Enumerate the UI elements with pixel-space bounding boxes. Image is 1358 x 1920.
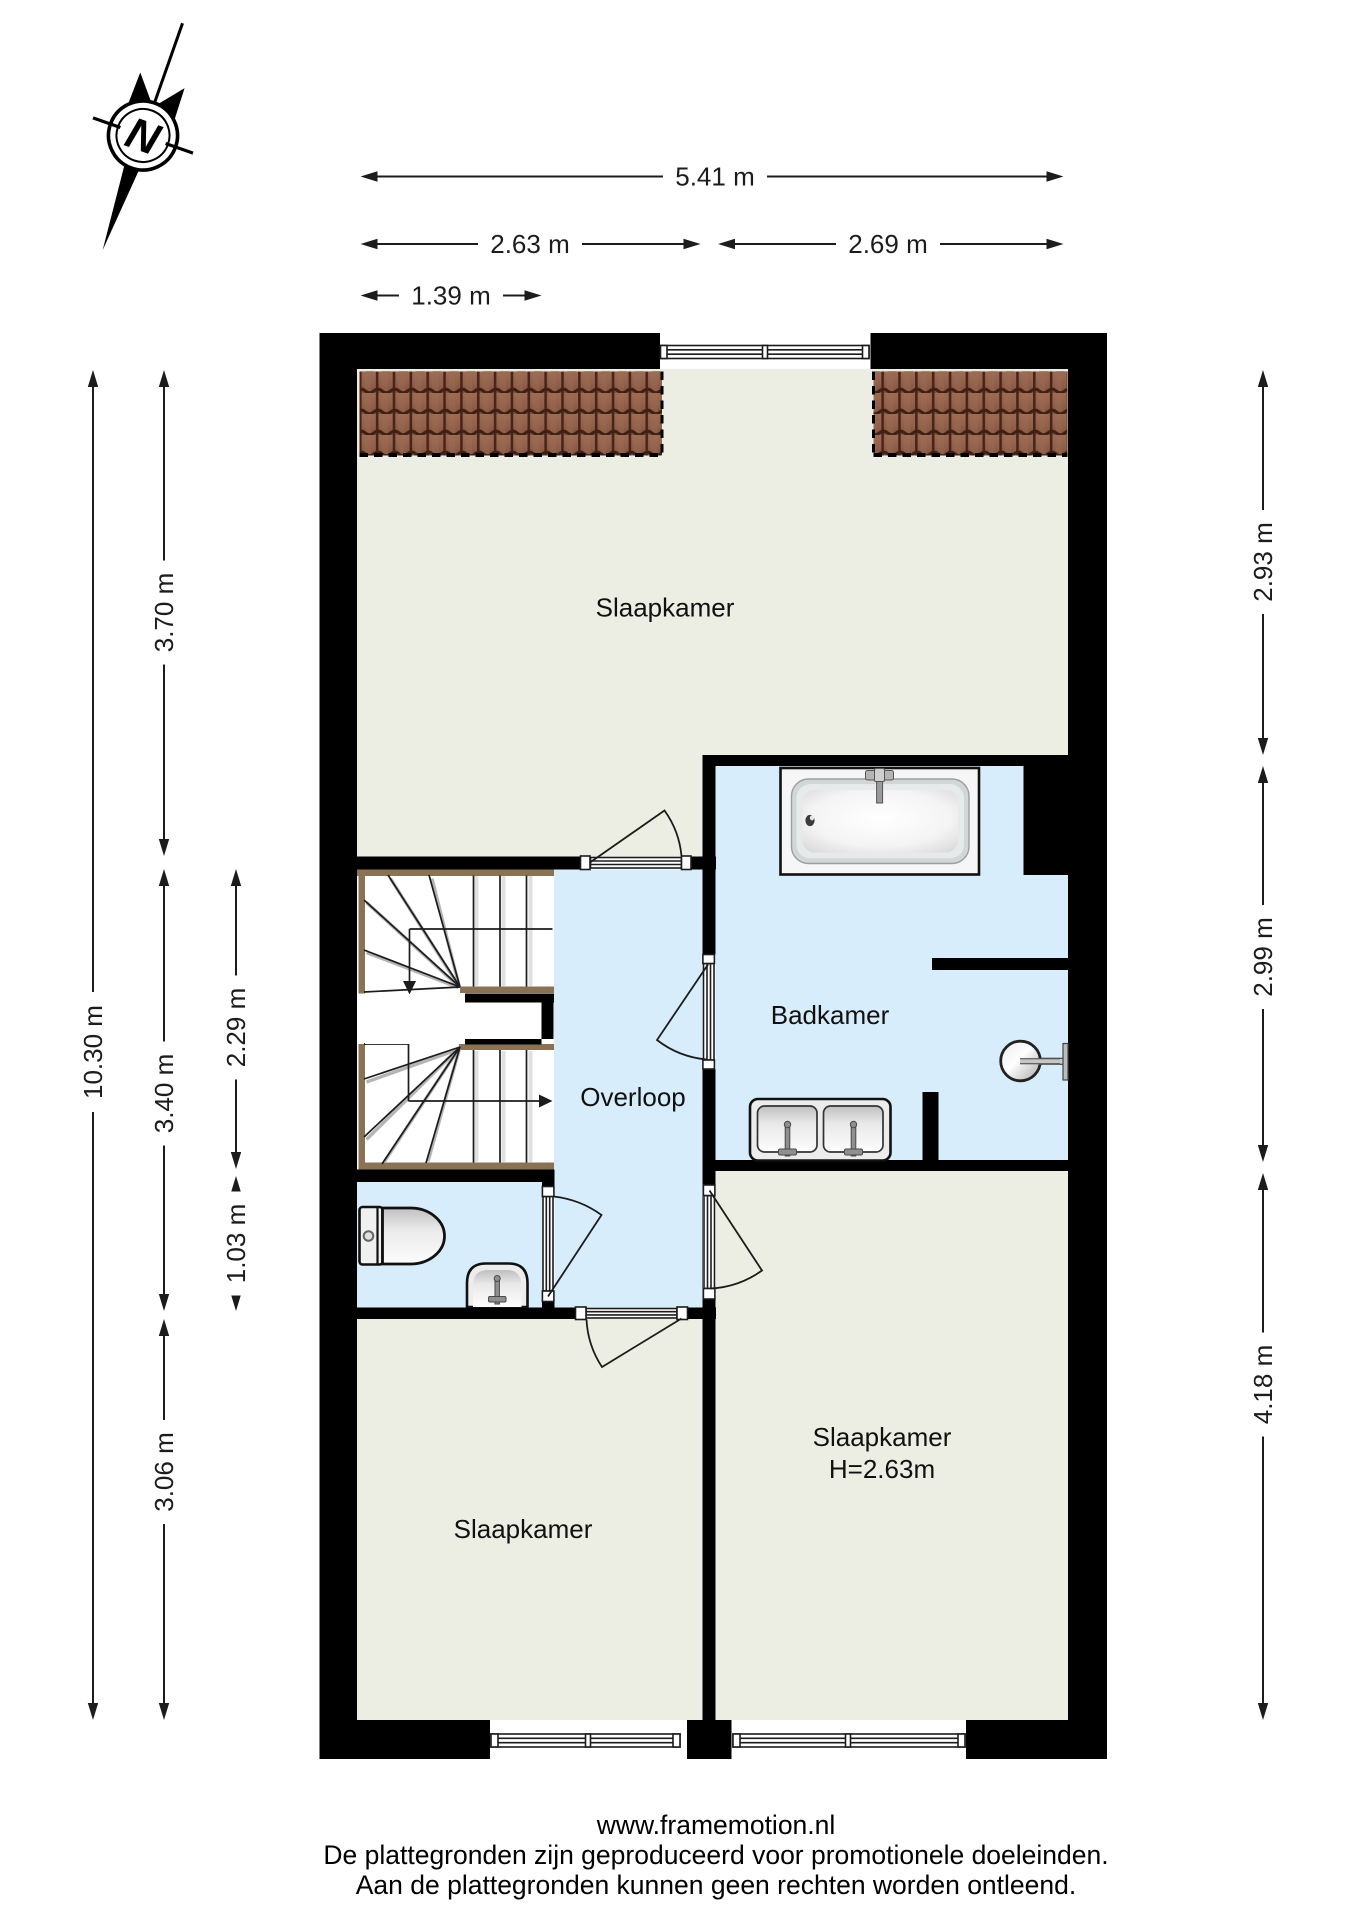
svg-text:De plattegronden zijn geproduc: De plattegronden zijn geproduceerd voor … — [323, 1840, 1108, 1870]
svg-text:3.70 m: 3.70 m — [149, 573, 179, 653]
svg-text:2.63 m: 2.63 m — [490, 229, 570, 259]
svg-text:1.39 m: 1.39 m — [411, 281, 491, 311]
svg-text:Slaapkamer: Slaapkamer — [596, 593, 735, 623]
svg-text:2.93 m: 2.93 m — [1248, 522, 1278, 602]
svg-text:2.99 m: 2.99 m — [1248, 917, 1278, 997]
svg-text:3.06 m: 3.06 m — [149, 1432, 179, 1512]
svg-text:3.40 m: 3.40 m — [149, 1054, 179, 1134]
svg-text:H=2.63m: H=2.63m — [829, 1454, 935, 1484]
svg-text:2.29 m: 2.29 m — [221, 988, 251, 1068]
svg-text:Overloop: Overloop — [580, 1082, 686, 1112]
svg-text:10.30 m: 10.30 m — [78, 1005, 108, 1099]
svg-text:5.41 m: 5.41 m — [675, 162, 755, 192]
svg-text:Slaapkamer: Slaapkamer — [454, 1514, 593, 1544]
svg-text:Aan de plattegronden kunnen ge: Aan de plattegronden kunnen geen rechten… — [356, 1870, 1076, 1900]
svg-text:4.18 m: 4.18 m — [1248, 1345, 1278, 1425]
svg-text:Badkamer: Badkamer — [771, 1000, 890, 1030]
svg-text:Slaapkamer: Slaapkamer — [813, 1422, 952, 1452]
svg-text:www.framemotion.nl: www.framemotion.nl — [596, 1810, 836, 1840]
svg-text:2.69 m: 2.69 m — [848, 229, 928, 259]
svg-text:1.03 m: 1.03 m — [221, 1204, 251, 1284]
